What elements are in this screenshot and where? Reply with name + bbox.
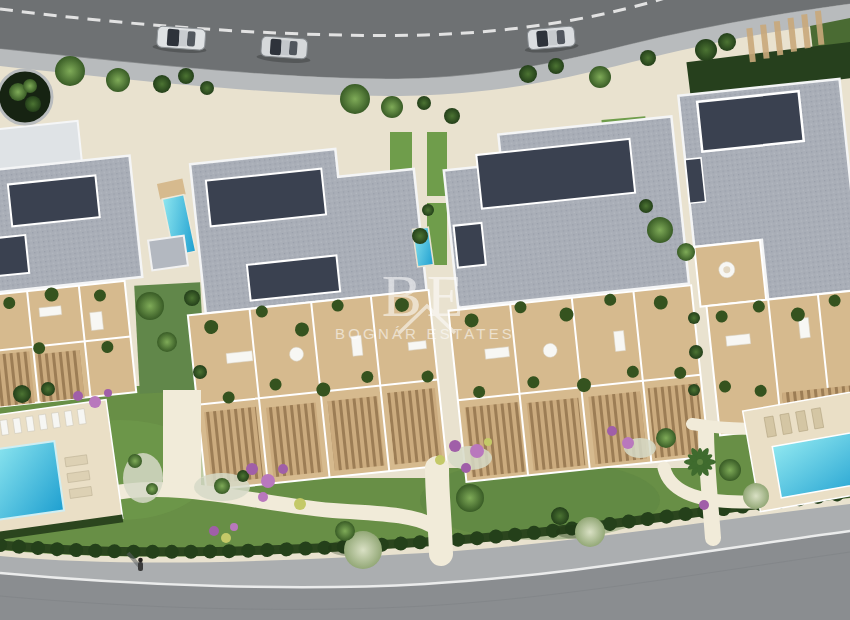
car-1: [152, 26, 208, 55]
path-vertical-left: [163, 390, 201, 486]
brand-monogram: BE: [382, 263, 469, 329]
pergola: [527, 398, 586, 471]
aerial-render: BE BOGNÁR ESTATES: [0, 0, 850, 620]
scene-canvas: BE BOGNÁR ESTATES: [0, 0, 850, 620]
building-3: [431, 116, 709, 482]
brand-name: BOGNÁR ESTATES: [335, 325, 515, 342]
solar-panel: [8, 175, 100, 226]
pergola: [266, 402, 323, 477]
solar-panel: [0, 235, 29, 278]
pergola: [328, 396, 385, 471]
communal-pool-left: [0, 400, 123, 541]
building-1: [0, 116, 154, 408]
solar-panel: [697, 91, 804, 151]
pool-left-water: [0, 441, 64, 520]
car-2: [256, 36, 312, 65]
shed-roof: [148, 236, 188, 271]
solar-panel: [454, 223, 486, 268]
pergola: [387, 388, 442, 465]
circular-planter: [0, 70, 52, 124]
